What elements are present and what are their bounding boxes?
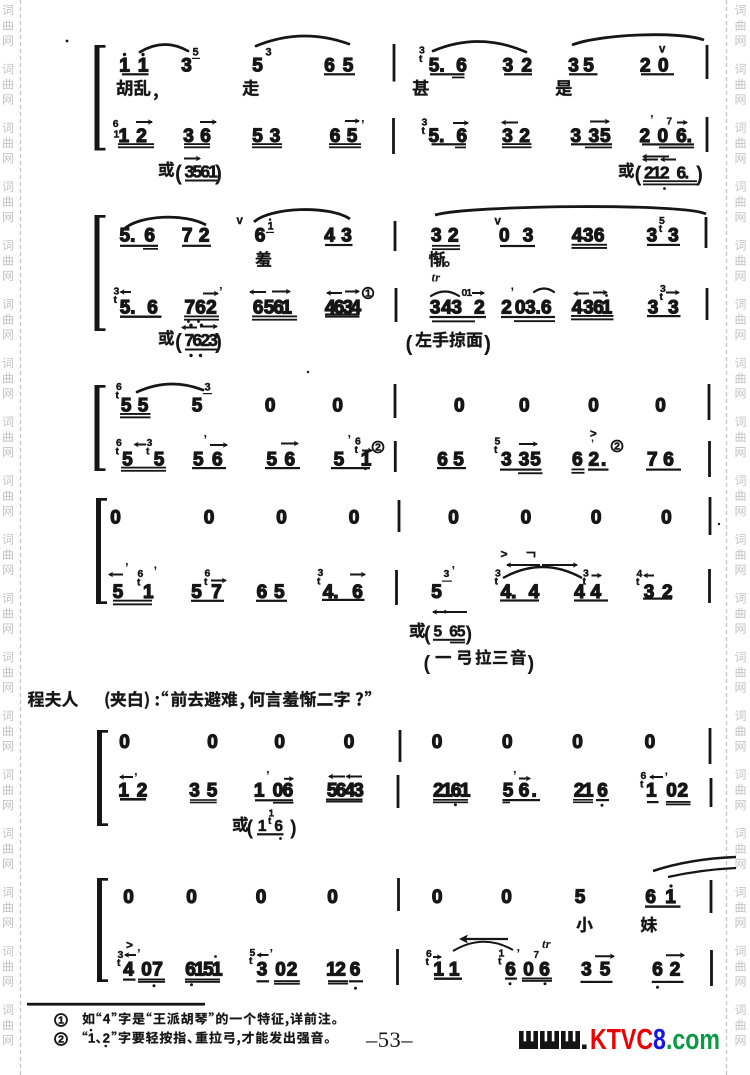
svg-text:6: 6 [539,960,550,981]
svg-text:t: t [419,53,423,65]
svg-text:0: 0 [273,781,284,802]
svg-text:1: 1 [433,960,444,981]
svg-text:v: v [659,44,666,56]
svg-text:0: 0 [519,396,530,417]
svg-text:1: 1 [365,288,371,300]
svg-text:’: ’ [348,432,352,447]
svg-text:0: 0 [454,396,465,417]
svg-text:1: 1 [281,298,292,319]
svg-text:’: ’ [270,946,274,961]
svg-text:0: 0 [572,732,583,753]
svg-text:’: ’ [219,284,223,299]
svg-text:3: 3 [647,226,658,247]
svg-text:6151: 6151 [185,960,223,981]
svg-text:5: 5 [252,56,263,77]
svg-text:5.: 5. [120,226,136,247]
svg-text:5: 5 [207,781,218,802]
svg-text:7: 7 [647,450,658,471]
svg-text:(: ( [424,624,431,646]
svg-text:3: 3 [644,582,655,603]
svg-text:1: 1 [254,781,265,802]
svg-text:t: t [426,956,430,968]
svg-text:tr: tr [542,936,552,951]
svg-text:0: 0 [276,508,287,529]
svg-text:5: 5 [431,582,442,603]
svg-text:0: 0 [645,732,656,753]
svg-text:1: 1 [449,960,460,981]
svg-text:3: 3 [205,382,211,394]
svg-text:.: . [532,781,537,802]
svg-text:6: 6 [255,226,266,247]
svg-text:>: > [126,938,133,952]
svg-text:2: 2 [662,582,673,603]
svg-text:7: 7 [667,117,673,128]
svg-text:t: t [422,125,426,137]
svg-text:5: 5 [192,396,203,417]
svg-text:2: 2 [206,298,217,319]
svg-text:’: ’ [154,564,158,579]
svg-text:t: t [659,223,663,235]
svg-text:2: 2 [589,450,600,471]
svg-text:’: ’ [266,768,270,783]
svg-text:2: 2 [678,781,689,802]
svg-text:0: 0 [141,960,152,981]
svg-text:’: ’ [452,563,456,578]
svg-text:–53–: –53– [365,1027,413,1052]
svg-text:0: 0 [119,732,130,753]
svg-text:0: 0 [332,396,343,417]
svg-text:6: 6 [144,226,155,247]
svg-text:3: 3 [431,226,442,247]
svg-text:0: 0 [344,732,355,753]
svg-text:3: 3 [525,298,536,319]
svg-text:t: t [114,294,118,306]
svg-text:5: 5 [600,960,611,981]
svg-text:’: ’ [650,112,654,127]
svg-text:5.: 5. [120,298,136,319]
svg-text:’: ’ [361,117,365,132]
svg-text:0: 0 [502,732,513,753]
svg-text:’: ’ [511,285,515,300]
svg-text:t: t [660,291,664,303]
svg-text:2: 2 [58,1034,64,1046]
svg-text:(: ( [406,333,413,356]
svg-text:>: > [501,547,508,561]
svg-text:1: 1 [258,818,267,835]
svg-text:3: 3 [668,226,679,247]
svg-text:2: 2 [448,226,459,247]
svg-text:(: ( [247,818,254,840]
svg-text:6: 6 [663,450,674,471]
svg-text:6: 6 [652,960,663,981]
svg-text:(: ( [175,331,182,354]
svg-text:t: t [137,576,141,588]
svg-text:5: 5 [193,47,199,59]
svg-text:2: 2 [501,298,512,319]
svg-text:3: 3 [189,781,200,802]
svg-text:1: 1 [665,887,676,908]
svg-text:t: t [204,576,208,588]
svg-text:6: 6 [283,781,294,802]
svg-text:(: ( [635,163,642,186]
svg-text:6: 6 [597,781,608,802]
svg-text:0: 0 [207,732,218,753]
svg-text:tr: tr [432,270,442,285]
svg-text:’: ’ [665,770,669,785]
svg-text:0: 0 [432,732,443,753]
svg-text:t: t [640,778,644,790]
svg-text:7: 7 [182,226,193,247]
svg-text:2161: 2161 [433,781,471,802]
svg-text:): ) [215,331,222,354]
svg-text:3: 3 [266,47,272,59]
svg-text:1: 1 [646,781,657,802]
svg-text:.: . [536,298,541,319]
svg-text:): ) [528,653,535,675]
svg-text:6: 6 [519,781,530,802]
svg-text:6: 6 [594,226,605,247]
svg-text:1: 1 [58,1015,64,1027]
svg-text:6: 6 [541,298,552,319]
svg-text:t: t [116,389,120,401]
svg-text:01: 01 [462,287,473,299]
svg-text:): ) [466,624,473,646]
svg-text:0: 0 [256,887,267,908]
svg-text:): ) [484,333,491,356]
svg-text:65: 65 [449,624,466,641]
svg-text:3: 3 [581,960,592,981]
svg-text:3: 3 [430,298,441,319]
svg-text:0: 0 [448,508,459,529]
svg-text:0: 0 [521,508,532,529]
svg-text:t: t [636,576,640,588]
svg-text:0: 0 [523,960,534,981]
svg-text:2: 2 [375,442,381,454]
svg-text:1: 1 [268,221,274,233]
svg-text:’: ’ [204,432,208,447]
svg-text:5: 5 [503,781,514,802]
svg-text:t: t [116,445,120,457]
svg-text:0: 0 [432,887,443,908]
svg-text:KTVC8.com: KTVC8.com [590,1024,720,1056]
svg-text:2: 2 [335,960,346,981]
svg-text:2: 2 [199,226,210,247]
svg-text:0: 0 [515,298,526,319]
svg-text:4: 4 [324,226,335,247]
svg-text:6: 6 [195,298,206,319]
svg-text:2: 2 [614,441,620,453]
svg-text:5: 5 [575,887,586,908]
svg-text:0: 0 [655,396,666,417]
svg-text:3: 3 [501,450,512,471]
svg-text:7623: 7623 [185,330,219,350]
svg-text:’: ’ [513,768,517,783]
svg-text:(: ( [424,653,431,675]
svg-text:0: 0 [499,226,510,247]
svg-text:t: t [317,575,321,587]
svg-text:0: 0 [349,508,360,529]
svg-text:’: ’ [125,560,129,575]
svg-text:’: ’ [591,438,594,450]
svg-text:0: 0 [661,508,672,529]
svg-text:0: 0 [204,508,215,529]
svg-text:7: 7 [152,960,163,981]
svg-text:): ) [696,163,703,186]
svg-text:3: 3 [519,450,530,471]
svg-text:0: 0 [591,508,602,529]
svg-text:t: t [249,955,253,967]
svg-text:6: 6 [274,818,283,835]
svg-text:6.: 6. [677,163,689,183]
svg-text:0: 0 [588,396,599,417]
svg-text:3: 3 [353,781,364,802]
svg-text:2: 2 [103,1031,110,1046]
svg-text:5: 5 [434,624,443,641]
svg-text:0: 0 [327,887,338,908]
svg-text:2: 2 [287,960,298,981]
svg-text:0: 0 [123,887,134,908]
svg-text:0: 0 [501,887,512,908]
svg-text:t: t [355,444,359,456]
svg-text:0: 0 [110,508,121,529]
svg-text:6: 6 [253,298,264,319]
svg-text:4: 4 [572,226,583,247]
svg-text:t: t [494,444,498,456]
svg-text:3: 3 [257,960,268,981]
svg-text:t: t [117,957,121,969]
svg-text:6: 6 [350,960,361,981]
svg-text:6: 6 [645,887,656,908]
svg-text:t: t [495,575,499,587]
svg-text:0: 0 [275,960,286,981]
svg-text:(: ( [175,162,182,185]
svg-text:6: 6 [147,298,158,319]
svg-text:t: t [146,445,150,457]
svg-text:2: 2 [474,298,485,319]
svg-text:’: ’ [137,946,141,961]
svg-text:3: 3 [523,226,534,247]
svg-text:1: 1 [583,781,594,802]
svg-text:4: 4 [123,960,134,981]
svg-text:3: 3 [341,226,352,247]
svg-text:’: ’ [517,946,521,961]
svg-text:5: 5 [530,450,541,471]
svg-text:v: v [237,215,244,227]
svg-text:): ) [215,162,222,185]
svg-text:0: 0 [274,732,285,753]
svg-text:1: 1 [88,1031,95,1046]
svg-text:’: ’ [444,607,448,622]
svg-text:0: 0 [265,396,276,417]
svg-text:3561: 3561 [185,162,219,182]
svg-text:3: 3 [444,568,450,580]
svg-text:3: 3 [451,298,462,319]
svg-text:t: t [498,955,502,967]
svg-text:): ) [290,818,297,840]
svg-text:3: 3 [181,56,192,77]
svg-text:0: 0 [186,887,197,908]
svg-text:t: t [583,575,587,587]
svg-text:.: . [601,450,606,471]
svg-text:2: 2 [670,960,681,981]
svg-text:212: 212 [644,163,670,183]
svg-text:6: 6 [505,960,516,981]
svg-text:6: 6 [572,450,583,471]
svg-text:3: 3 [583,226,594,247]
svg-text:7: 7 [185,298,196,319]
